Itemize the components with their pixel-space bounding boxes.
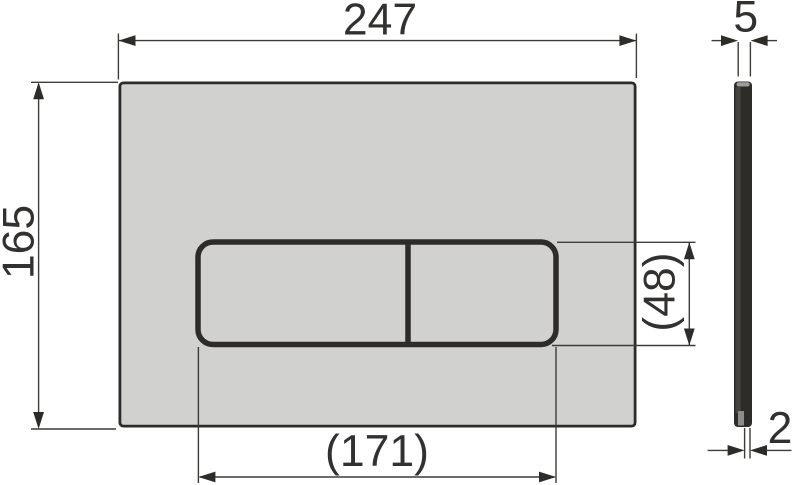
svg-text:247: 247 (343, 0, 417, 45)
svg-text:2: 2 (768, 404, 793, 453)
svg-text:5: 5 (733, 0, 758, 42)
svg-text:(48): (48) (636, 252, 685, 331)
svg-text:165: 165 (0, 205, 44, 279)
svg-text:(171): (171) (325, 427, 429, 476)
